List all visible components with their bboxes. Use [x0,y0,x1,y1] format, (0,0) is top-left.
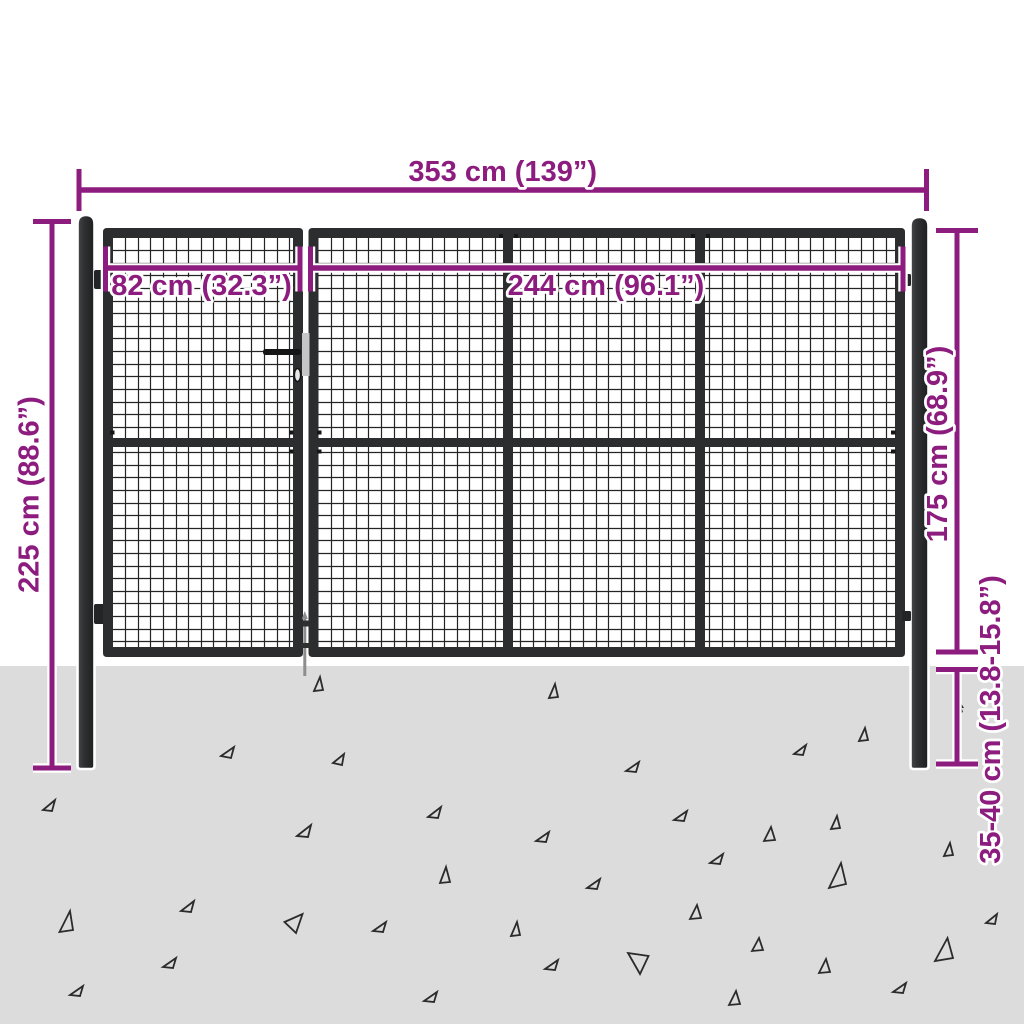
svg-text:225 cm (88.6”): 225 cm (88.6”) [14,396,46,593]
svg-text:353 cm (139”): 353 cm (139”) [408,156,597,188]
svg-text:82 cm (32.3”): 82 cm (32.3”) [111,270,292,302]
svg-text:244 cm (96.1”): 244 cm (96.1”) [508,270,705,302]
svg-text:35-40 cm (13.8-15.8”): 35-40 cm (13.8-15.8”) [975,575,1007,864]
svg-text:175 cm (68.9”): 175 cm (68.9”) [922,346,954,543]
